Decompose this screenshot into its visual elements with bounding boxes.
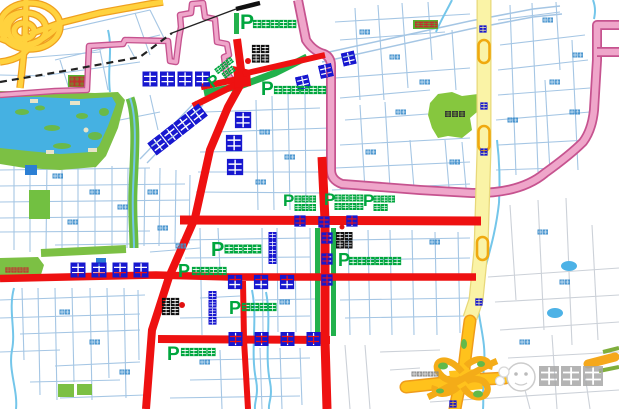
svg-text:P: P <box>324 190 335 209</box>
svg-text:P: P <box>240 11 254 34</box>
svg-text:P: P <box>338 250 350 270</box>
svg-text:P: P <box>211 239 224 261</box>
svg-text:P: P <box>167 344 180 365</box>
svg-text:P: P <box>229 298 241 318</box>
svg-text:P: P <box>261 79 274 100</box>
svg-text:P: P <box>283 191 294 210</box>
svg-text:P: P <box>363 191 374 210</box>
svg-text:P: P <box>178 261 190 281</box>
